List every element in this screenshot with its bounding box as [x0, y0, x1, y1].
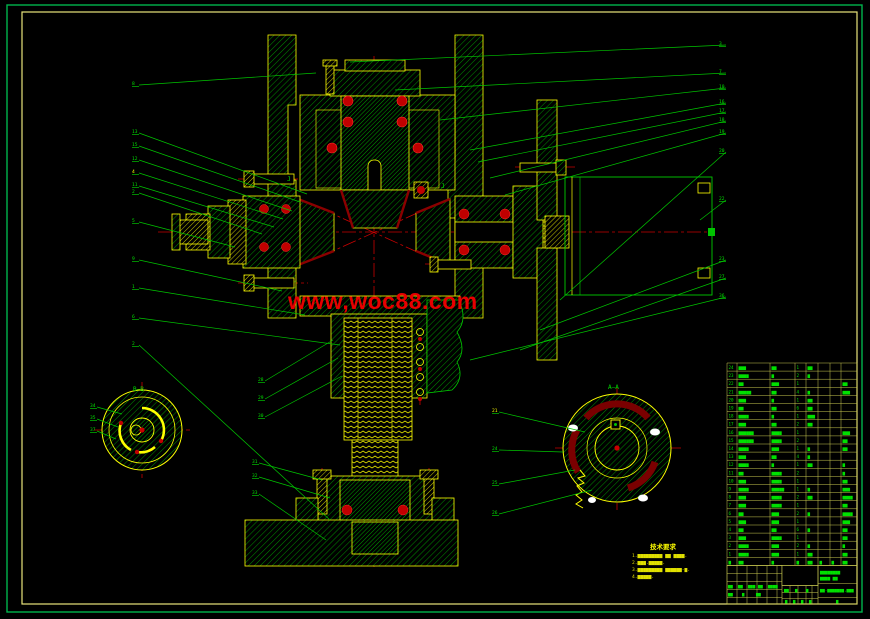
table-cell-text: ▆▆	[807, 551, 814, 557]
table-cell-text: 2	[797, 470, 800, 475]
table-cell-text: ▆▆	[771, 406, 778, 412]
leader-line	[265, 340, 333, 381]
table-cell-text: ▆▆	[771, 365, 778, 371]
table-cell-text: ▆▆▆▆▆	[738, 389, 752, 395]
table-cell-text: ▆▆▆▆	[771, 438, 783, 444]
table-cell-text: ▆▆▆	[738, 478, 747, 484]
leader-line	[490, 121, 726, 178]
watermark-text: www,woc88.com	[287, 288, 478, 314]
table-cell-text: ▆	[807, 511, 811, 517]
table-cell-text: ▆	[842, 543, 846, 549]
table-cell-text: 1	[797, 503, 800, 508]
table-cell-text: ▆	[807, 454, 811, 460]
table-cell-text: ▆▆▆	[842, 430, 851, 436]
table-cell-text: 1	[797, 519, 800, 524]
leader-label: 13	[132, 129, 138, 135]
table-cell-text: ▆▆▆	[771, 446, 780, 452]
table-cell-text: 22	[729, 381, 735, 386]
leader-label: 4	[132, 169, 135, 175]
detail-letter-j1: J	[287, 175, 291, 183]
titleblock-text: ▆▆	[737, 584, 743, 589]
detail-view-right: A—A	[563, 384, 671, 508]
section-label-aa: A—A	[608, 384, 619, 391]
leader-label: 12	[132, 156, 138, 162]
leader-line	[139, 318, 340, 345]
leader-label: 27	[719, 274, 725, 280]
table-cell-text: ▆▆▆▆	[771, 478, 783, 484]
table-cell-text: 16	[729, 430, 735, 435]
svg-text:▆: ▆	[805, 588, 809, 593]
leader-label: 25	[492, 480, 498, 486]
svg-text:▆: ▆	[800, 599, 804, 604]
table-cell-text: ▆▆	[807, 495, 814, 501]
leader-label: 7	[719, 69, 722, 75]
leader-label: 2	[132, 341, 135, 347]
table-cell-text: 2	[797, 511, 800, 516]
table-cell-text: 1	[797, 462, 800, 467]
table-cell-text: ▆▆	[842, 438, 849, 444]
table-cell-text: 6	[797, 406, 800, 411]
leader-label: 37	[90, 427, 96, 433]
table-header-text: ▆	[771, 559, 775, 565]
table-header-text: ▆	[831, 559, 835, 565]
table-header-text: ▆	[819, 559, 823, 565]
table-cell-text: ▆▆▆▆	[738, 543, 750, 549]
leader-line	[259, 463, 322, 480]
table-cell-text: ▆▆▆▆	[771, 503, 783, 509]
leader-label: 31	[252, 459, 258, 465]
worm-screw-section	[331, 300, 463, 482]
drawing-title-line2: ▆▆▆▆ ▆▆	[819, 576, 838, 582]
table-cell-text: ▆▆▆▆	[771, 535, 783, 541]
table-cell-text: ▆▆	[842, 503, 849, 509]
leader-label: 6	[132, 314, 135, 320]
leader-line	[470, 297, 726, 360]
table-cell-text: ▆	[807, 389, 811, 395]
leader-label: 22	[719, 196, 725, 202]
table-cell-text: ▆▆	[807, 422, 814, 428]
table-cell-text: ▆▆▆	[842, 389, 851, 395]
table-cell-text: 2	[797, 373, 800, 378]
table-cell-text: ▆▆▆	[738, 503, 747, 509]
table-cell-text: 13	[729, 454, 735, 459]
svg-text:▆▆: ▆▆	[727, 592, 733, 597]
table-cell-text: ▆▆▆▆	[771, 495, 783, 501]
table-cell-text: 4	[797, 454, 800, 459]
table-cell-text: ▆▆	[771, 389, 778, 395]
table-cell-text: 10	[729, 478, 735, 483]
bottom-bearing-housing	[296, 470, 454, 522]
leader-label: 8	[132, 81, 135, 87]
table-cell-text: 2	[729, 543, 732, 548]
leader-line	[265, 376, 342, 417]
section-label-bb: B—B	[133, 386, 144, 393]
leader-label: 24	[492, 446, 498, 452]
leader-line	[499, 490, 592, 514]
leader-label: 2	[132, 189, 135, 195]
svg-text:▆: ▆	[794, 588, 798, 593]
detail-view-left: B—B	[102, 386, 182, 470]
leader-label: 3	[719, 41, 722, 47]
table-cell-text: 1	[797, 414, 800, 419]
table-cell-text: 9	[729, 487, 732, 492]
table-cell-text: 1	[797, 478, 800, 483]
table-cell-text: ▆▆▆▆▆▆	[738, 438, 755, 444]
leader-label: 33	[252, 490, 258, 496]
table-cell-text: 24	[729, 365, 735, 370]
table-cell-text: 1	[797, 446, 800, 451]
table-cell-text: 18	[729, 414, 735, 419]
table-cell-text: ▆	[807, 373, 811, 379]
table-cell-text: ▆	[771, 462, 775, 468]
table-cell-text: ▆▆▆▆	[738, 373, 750, 379]
table-cell-text: 12	[729, 462, 735, 467]
table-cell-text: ▆▆	[807, 462, 814, 468]
table-cell-text: 1	[797, 551, 800, 556]
table-cell-text: ▆	[771, 414, 775, 420]
leader-label: 28	[258, 377, 264, 383]
table-cell-text: ▆▆	[738, 527, 745, 533]
table-cell-text: 8	[729, 495, 732, 500]
table-cell-text: ▆▆	[842, 381, 849, 387]
leader-line	[395, 73, 726, 90]
table-cell-text: ▆▆▆▆▆▆	[738, 430, 755, 436]
table-cell-text: ▆▆	[771, 422, 778, 428]
table-cell-text: ▆▆▆	[738, 519, 747, 525]
leader-label: 9	[132, 256, 135, 262]
leader-label: 16	[719, 99, 725, 105]
table-cell-text: ▆▆	[842, 446, 849, 452]
svg-text:1.▆▆▆▆▆▆▆▆▆ ▆▆ ▆▆▆▆.: 1.▆▆▆▆▆▆▆▆▆ ▆▆ ▆▆▆▆.	[632, 553, 687, 559]
cad-drawing-canvas: B—B A—A www,woc88.com J J 技术要求 1.▆▆▆▆▆▆▆…	[0, 0, 870, 619]
table-cell-text: ▆▆	[842, 478, 849, 484]
titleblock-text: ▆▆▆	[747, 584, 756, 589]
table-cell-text: 19	[729, 406, 735, 411]
table-cell-text: ▆▆▆▆	[842, 511, 854, 517]
table-cell-text: ▆▆▆	[842, 519, 851, 525]
top-left-bolt	[326, 64, 334, 94]
table-cell-text: ▆▆▆	[807, 414, 816, 420]
table-cell-text: ▆	[807, 543, 811, 549]
leader-label: 35	[90, 415, 96, 421]
svg-text:▆▆: ▆▆	[783, 588, 789, 593]
table-cell-text: ▆▆	[807, 397, 814, 403]
leader-label: 5	[132, 218, 135, 224]
table-cell-text: ▆	[807, 527, 811, 533]
svg-text:▆: ▆	[835, 599, 839, 604]
table-cell-text: ▆▆▆▆	[842, 495, 854, 501]
parts-list-table: 24▆▆▆▆▆1▆▆23▆▆▆▆▆2▆22▆▆▆▆▆1▆▆21▆▆▆▆▆▆▆4▆…	[727, 363, 857, 566]
table-cell-text: ▆▆▆	[738, 495, 747, 501]
table-cell-text: ▆▆▆▆	[738, 551, 750, 557]
table-cell-text: ▆	[771, 373, 775, 379]
table-cell-text: ▆▆	[738, 381, 745, 387]
leader-line	[265, 358, 338, 399]
table-cell-text: 4	[797, 389, 800, 394]
table-cell-text: ▆	[807, 446, 811, 452]
leader-label: 17	[719, 108, 725, 114]
table-cell-text: ▆▆▆▆▆	[771, 487, 785, 493]
table-cell-text: 17	[729, 422, 735, 427]
table-cell-text: 6	[729, 511, 732, 516]
table-cell-text: 2	[797, 422, 800, 427]
leader-label: 18	[719, 117, 725, 123]
table-header-text: ▆	[728, 559, 732, 565]
leader-label: 10	[719, 84, 725, 90]
title-block: ▆▆▆▆▆▆▆▆▆▆▆▆▆▆▆▆▆▆▆▆▆▆▆▆▆▆▆▆▆▆▆▆▆▆▆▆▆▆ ▆…	[727, 566, 857, 605]
leader-label: 21	[492, 408, 498, 414]
leader-label: 32	[252, 473, 258, 479]
cad-drawing: B—B A—A www,woc88.com J J 技术要求 1.▆▆▆▆▆▆▆…	[0, 0, 870, 619]
table-header-text: ▆	[796, 559, 800, 565]
leader-label: 30	[258, 413, 264, 419]
leader-label: 19	[719, 129, 725, 135]
table-cell-text: 21	[729, 389, 735, 394]
leader-label: 23	[719, 256, 725, 262]
leader-line	[470, 103, 726, 150]
table-cell-text: ▆▆▆	[771, 543, 780, 549]
leader-label: 36	[719, 293, 725, 299]
table-cell-text: 3	[729, 535, 732, 540]
svg-text:3.▆▆▆▆▆▆▆▆▆ ▆▆▆▆▆▆-▆.: 3.▆▆▆▆▆▆▆▆▆ ▆▆▆▆▆▆-▆.	[632, 567, 690, 573]
table-cell-text: 1	[797, 535, 800, 540]
table-cell-text: 2	[797, 495, 800, 500]
table-header-text: ▆▆	[842, 559, 849, 565]
table-cell-text: 1	[797, 487, 800, 492]
svg-text:▆: ▆	[792, 599, 796, 604]
leader-label: 29	[258, 395, 264, 401]
table-cell-text: 1	[797, 381, 800, 386]
top-cap	[330, 70, 420, 96]
table-cell-text: ▆▆	[807, 365, 814, 371]
table-cell-text: ▆▆▆▆	[738, 487, 750, 493]
table-cell-text: 2	[797, 438, 800, 443]
table-cell-text: 1	[797, 365, 800, 370]
table-cell-text: ▆▆▆	[771, 551, 780, 557]
table-cell-text: 2	[797, 543, 800, 548]
table-cell-text: ▆▆▆	[771, 511, 780, 517]
table-cell-text: 4	[729, 527, 732, 532]
leader-label: 20	[719, 148, 725, 154]
svg-text:▆: ▆	[808, 599, 812, 604]
table-cell-text: 11	[729, 470, 735, 475]
motor-outline	[565, 177, 715, 295]
table-cell-text: 1	[729, 551, 732, 556]
table-cell-text: ▆▆	[807, 406, 814, 412]
table-cell-text: ▆▆▆▆	[738, 446, 750, 452]
table-cell-text: ▆▆	[771, 527, 778, 533]
leader-line	[478, 112, 726, 162]
svg-text:▆: ▆	[741, 592, 745, 597]
table-cell-text: ▆▆▆	[738, 365, 747, 371]
leader-label: 26	[492, 510, 498, 516]
table-cell-text: 23	[729, 373, 735, 378]
svg-text:2.▆▆▆.▆▆▆▆▆.: 2.▆▆▆.▆▆▆▆▆.	[632, 560, 665, 566]
table-cell-text: ▆	[771, 397, 775, 403]
table-cell-text: ▆▆▆▆	[738, 414, 750, 420]
leader-line	[700, 200, 726, 220]
table-cell-text: 6	[797, 527, 800, 532]
table-cell-text: ▆▆▆	[738, 454, 747, 460]
table-cell-text: ▆▆	[738, 406, 745, 412]
table-cell-text: 14	[729, 446, 735, 451]
svg-text:4.▆▆▆▆▆.: 4.▆▆▆▆▆.	[632, 574, 654, 580]
table-cell-text: 7	[729, 503, 732, 508]
leader-line	[499, 450, 563, 452]
table-cell-text: ▆▆	[738, 511, 745, 517]
table-cell-text: ▆▆▆▆	[738, 462, 750, 468]
table-header-text: ▆▆	[738, 559, 745, 565]
leader-label: 1	[132, 284, 135, 290]
leader-label: 15	[132, 142, 138, 148]
leader-label: 34	[90, 403, 96, 409]
titleblock-text: ▆▆▆▆	[767, 584, 778, 589]
titleblock-text: ▆▆	[727, 584, 733, 589]
table-cell-text: 1	[797, 397, 800, 402]
table-cell-text: 5	[729, 519, 732, 524]
table-cell-text: ▆▆▆	[771, 519, 780, 525]
table-cell-text: ▆▆▆	[842, 487, 851, 493]
svg-text:▆▆: ▆▆	[755, 592, 761, 597]
table-header-text: ▆▆	[807, 559, 814, 565]
table-cell-text: ▆	[842, 462, 846, 468]
table-cell-text: ▆▆▆	[738, 422, 747, 428]
technical-notes: 技术要求 1.▆▆▆▆▆▆▆▆▆ ▆▆ ▆▆▆▆. 2.▆▆▆.▆▆▆▆▆. 3…	[632, 542, 690, 580]
table-cell-text: ▆▆▆▆	[771, 470, 783, 476]
table-cell-text: ▆▆	[842, 551, 849, 557]
table-cell-text: ▆▆	[771, 454, 778, 460]
table-cell-text: ▆▆▆▆	[771, 430, 783, 436]
table-cell-text: ▆▆▆	[771, 381, 780, 387]
table-cell-text: ▆▆	[738, 470, 745, 476]
base-plate	[245, 520, 458, 566]
drawing-number: ▆▆-▆▆▆▆▆▆▆,▆▆▆	[819, 588, 854, 593]
svg-text:▆: ▆	[784, 599, 788, 604]
leader-line	[499, 470, 575, 484]
table-cell-text: 20	[729, 397, 735, 402]
table-cell-text: ▆▆▆	[738, 397, 747, 403]
table-cell-text: 1	[797, 430, 800, 435]
table-cell-text: ▆▆	[842, 535, 849, 541]
table-cell-text: ▆▆▆	[738, 535, 747, 541]
leader-line	[350, 45, 726, 62]
table-cell-text: ▆▆	[842, 527, 849, 533]
leader-label: 11	[132, 182, 138, 188]
titleblock-text: ▆▆	[757, 584, 763, 589]
table-cell-text: 15	[729, 438, 735, 443]
table-cell-text: ▆	[842, 470, 846, 476]
table-cell-text: ▆	[807, 487, 811, 493]
notes-title: 技术要求	[650, 542, 677, 551]
detail-letter-j2: J	[441, 182, 445, 190]
